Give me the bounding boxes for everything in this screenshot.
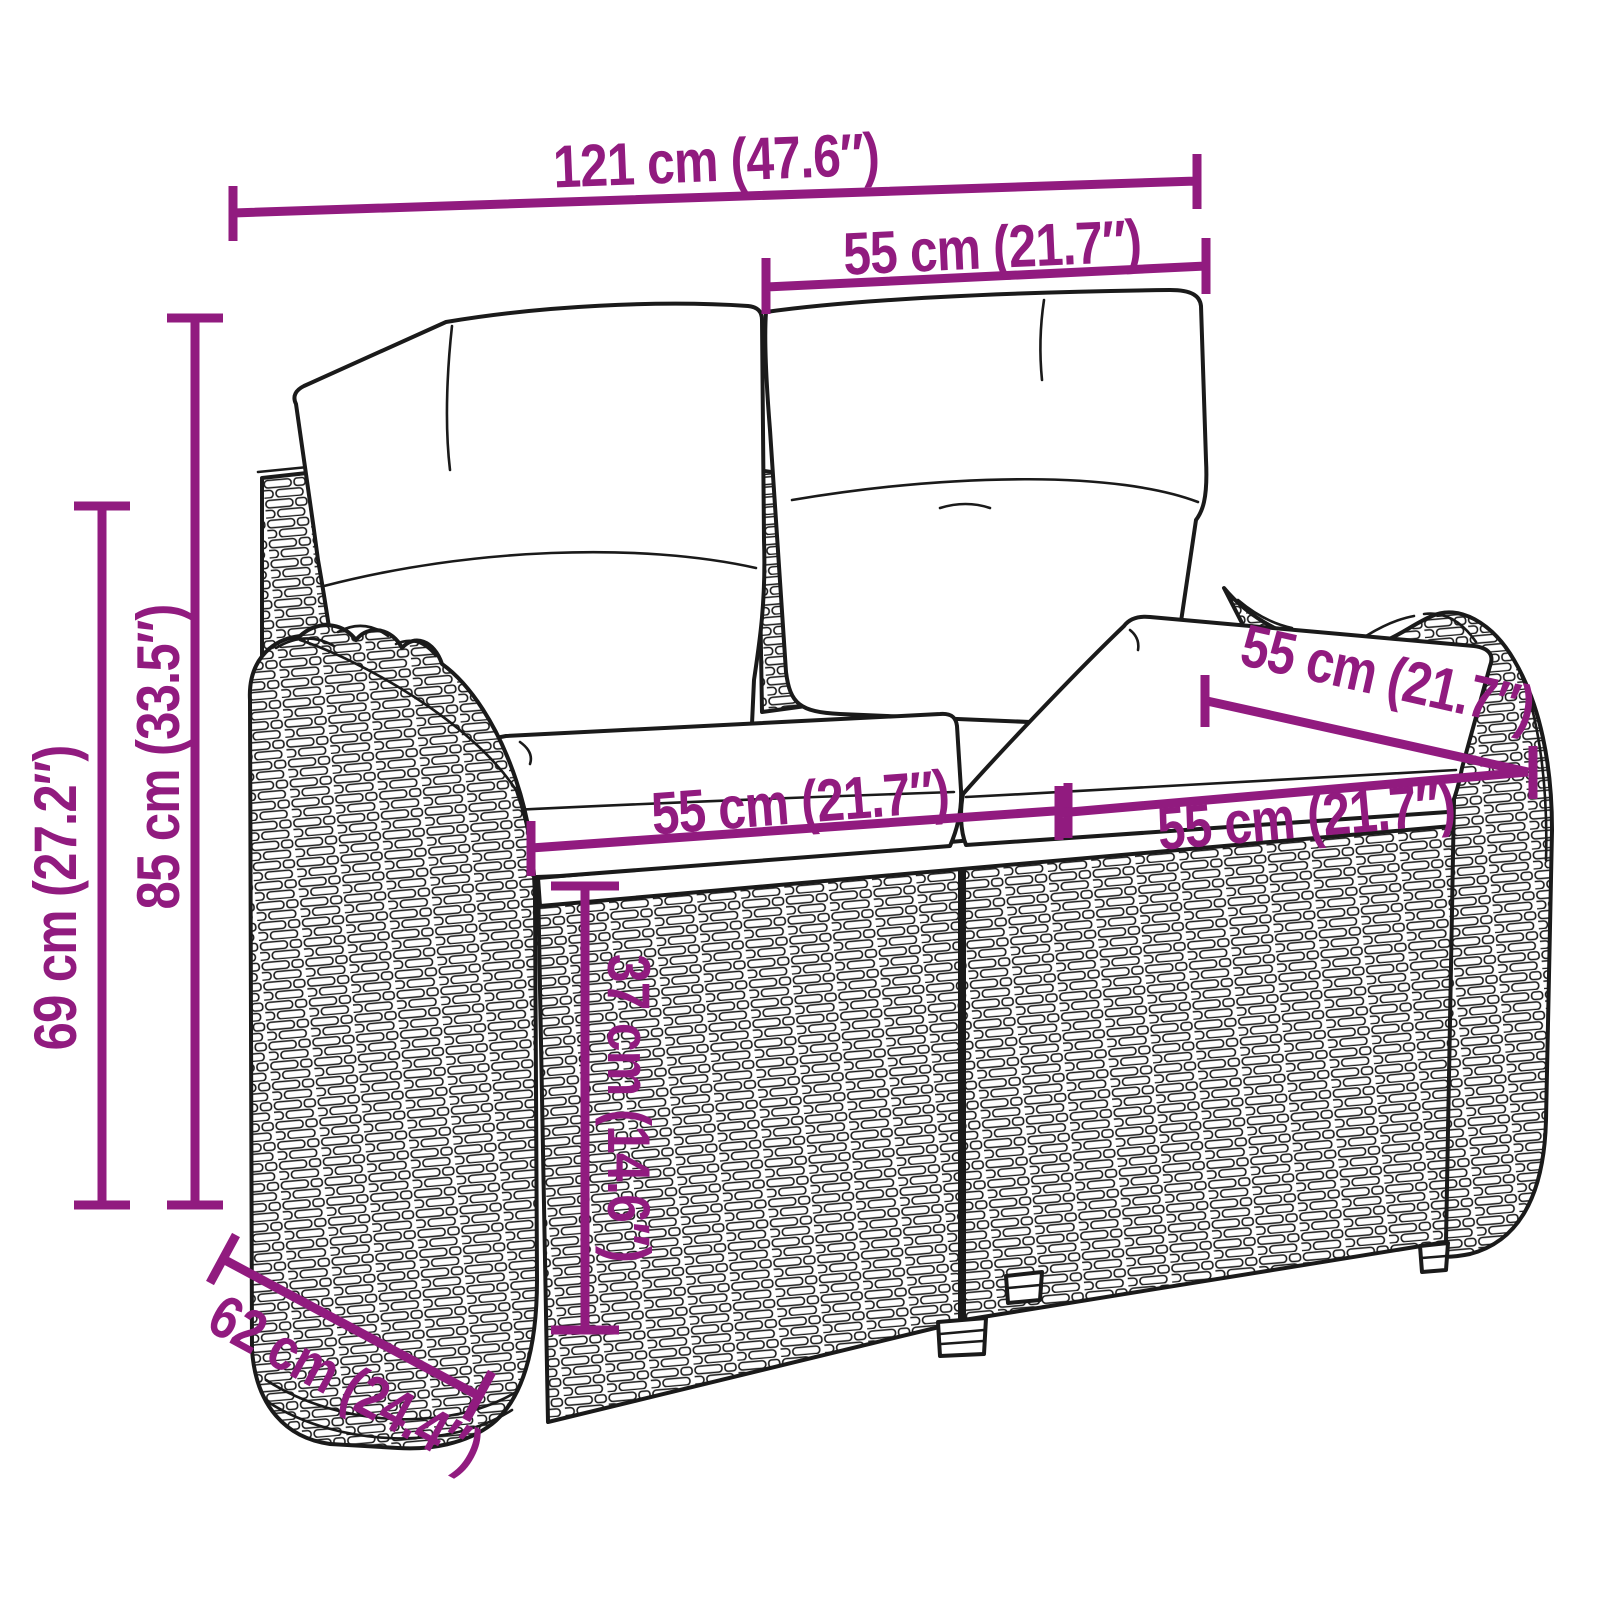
dimension-label: 121 cm (47.6″): [552, 120, 880, 200]
dimension-label: 69 cm (27.2″): [22, 746, 89, 1051]
dimension-label: 37 cm (14.6″): [595, 954, 662, 1262]
dimension-label: 85 cm (33.5″): [125, 605, 192, 910]
diagram-canvas: 121 cm (47.6″) 55 cm (21.7″) 85 cm (33.5…: [0, 0, 1600, 1600]
dimension-armrest-height: 69 cm (27.2″): [22, 506, 130, 1205]
product-dimension-diagram: 121 cm (47.6″) 55 cm (21.7″) 85 cm (33.5…: [0, 0, 1600, 1600]
dimension-total-height: 85 cm (33.5″): [125, 318, 223, 1205]
bench-drawing: [250, 290, 1552, 1448]
dimension-label: 55 cm (21.7″): [842, 207, 1143, 287]
seat-base: [538, 798, 1454, 1422]
